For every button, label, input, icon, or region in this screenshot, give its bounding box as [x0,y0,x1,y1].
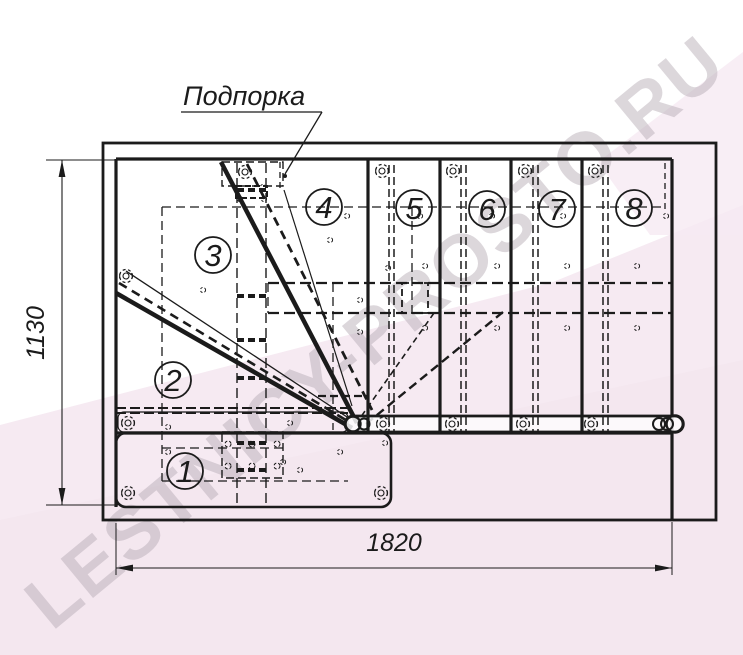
screw-mark-icon [200,287,205,292]
step-number: 7 [548,192,567,227]
bolt-icon [388,168,389,174]
bolt-icon [132,273,133,279]
drawing-svg: LESTNICY-PROSTO.RU [0,0,743,655]
support-rail [345,416,684,433]
bolt-icon [379,168,385,174]
step-number: 3 [204,238,221,273]
screw-mark-icon [327,237,332,242]
step-number: 4 [315,190,332,225]
step-number: 1 [176,454,193,489]
screw-mark-icon [344,213,349,218]
step-number: 8 [625,191,643,226]
callout-label: Подпорка [183,81,305,111]
dimension-width-value: 1820 [366,529,422,557]
bolt-icon [123,273,129,279]
bolt-icon [450,168,456,174]
bolt-icon [376,168,377,174]
callout-leader [181,112,322,178]
bolt-icon [239,169,240,175]
bolt-icon [120,273,121,279]
bolt-icon [376,165,389,178]
screw-mark-icon [564,263,569,268]
step-number: 2 [163,363,181,398]
bolt-icon [447,165,460,178]
bolt-icon [447,168,448,174]
stair-plan-drawing: LESTNICY-PROSTO.RU [0,0,743,655]
bolt-icon [242,169,248,175]
step-number: 6 [478,192,496,227]
bolt-icon [459,168,460,174]
dimension-height-value: 1130 [22,306,50,360]
step-number: 5 [405,191,423,226]
